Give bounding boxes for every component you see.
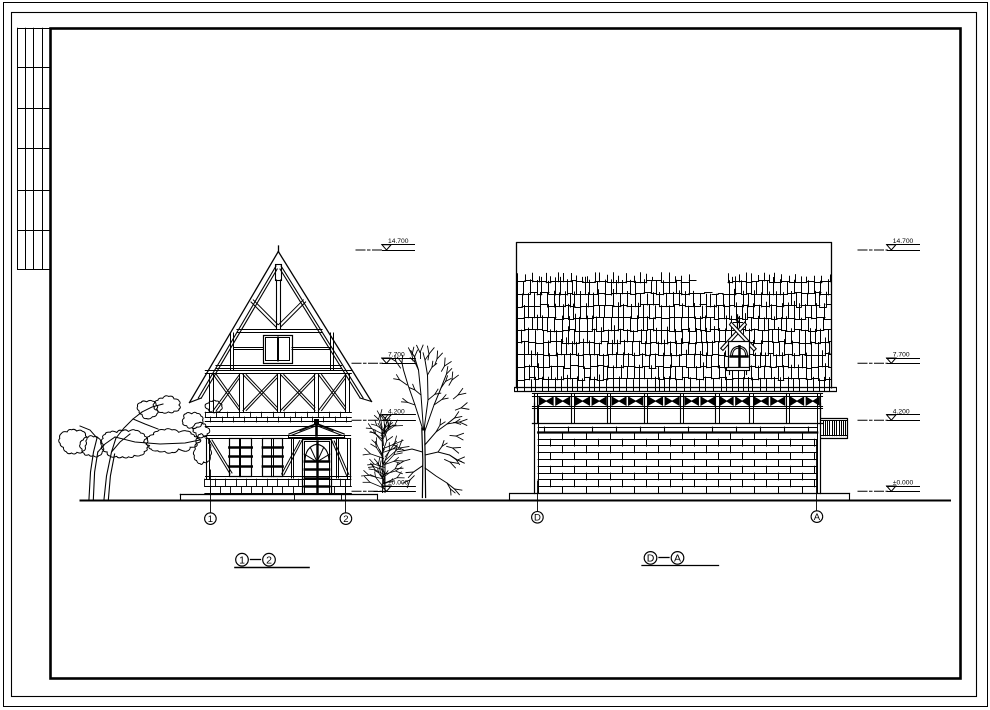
svg-text:1: 1 — [208, 514, 213, 525]
svg-text:2: 2 — [266, 554, 272, 566]
svg-text:7.700: 7.700 — [388, 352, 405, 359]
svg-text:A: A — [814, 512, 821, 523]
svg-text:D: D — [647, 553, 655, 565]
svg-text:4.200: 4.200 — [388, 408, 405, 415]
svg-text:1: 1 — [239, 554, 245, 566]
svg-text:14.700: 14.700 — [893, 238, 914, 245]
svg-text:14.700: 14.700 — [388, 238, 409, 245]
svg-text:±0.000: ±0.000 — [893, 480, 914, 487]
svg-text:7.700: 7.700 — [893, 352, 910, 359]
svg-text:D: D — [534, 513, 541, 524]
svg-text:2: 2 — [343, 514, 348, 525]
svg-text:4.200: 4.200 — [893, 408, 910, 415]
svg-text:A: A — [674, 553, 681, 565]
svg-text:±0.000: ±0.000 — [388, 480, 409, 487]
